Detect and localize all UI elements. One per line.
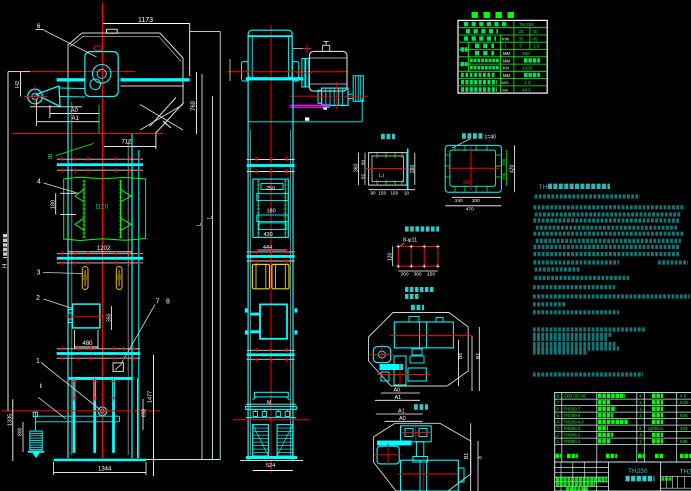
svg-text:712: 712 — [122, 140, 133, 146]
svg-text:7: 7 — [156, 299, 160, 306]
svg-text:B6: B6 — [458, 353, 464, 359]
svg-text:TH250.3: TH250.3 — [564, 426, 581, 431]
svg-text:45: 45 — [533, 36, 539, 41]
svg-text:470: 470 — [466, 207, 474, 212]
svg-text:1: 1 — [36, 358, 40, 365]
svg-text:TH 250: TH 250 — [519, 22, 535, 27]
svg-text:1: 1 — [639, 400, 642, 405]
svg-text:250: 250 — [266, 186, 275, 192]
svg-text:H2: H2 — [15, 81, 21, 88]
svg-text:TH250.1: TH250.1 — [564, 439, 581, 444]
svg-text:35: 35 — [519, 36, 525, 41]
svg-text:TH250.7: TH250.7 — [564, 407, 581, 412]
svg-text:2: 2 — [557, 433, 560, 438]
svg-text:1202: 1202 — [97, 246, 111, 252]
svg-text:300: 300 — [414, 271, 422, 277]
svg-text:150: 150 — [427, 271, 435, 277]
svg-text:40: 40 — [533, 29, 539, 34]
svg-text:TH250.2: TH250.2 — [564, 433, 581, 438]
svg-text:TH250: TH250 — [628, 468, 648, 475]
svg-text:8: 8 — [557, 394, 560, 399]
svg-text:r/mb: r/mb — [501, 88, 509, 92]
svg-text:650: 650 — [142, 408, 148, 417]
svg-text:688: 688 — [680, 439, 688, 444]
svg-text:4: 4 — [37, 179, 41, 186]
svg-text:5: 5 — [557, 413, 560, 418]
svg-text:M: M — [267, 400, 271, 406]
svg-text:1: 1 — [557, 439, 560, 444]
svg-text:a: a — [478, 456, 484, 459]
svg-text:1120: 1120 — [95, 205, 109, 211]
svg-text:48.5: 48.5 — [522, 87, 531, 92]
svg-text:1: 1 — [639, 413, 642, 418]
svg-text:MM: MM — [503, 58, 510, 63]
svg-text:3: 3 — [37, 270, 41, 277]
svg-text:1=40: 1=40 — [485, 135, 496, 141]
svg-text:M/S: M/S — [502, 80, 509, 85]
svg-text:1: 1 — [639, 439, 642, 444]
svg-text:I-I: I-I — [379, 174, 384, 180]
svg-text:240: 240 — [455, 198, 463, 203]
svg-text:480: 480 — [83, 341, 94, 347]
svg-text:200: 200 — [472, 198, 480, 203]
svg-text:20: 20 — [404, 191, 410, 196]
svg-text:25: 25 — [519, 29, 525, 34]
svg-text:KN: KN — [503, 66, 509, 71]
svg-text:3: 3 — [519, 44, 522, 49]
svg-text:204: 204 — [680, 426, 688, 431]
svg-text:Q235-A: Q235-A — [648, 426, 663, 431]
svg-text:1477: 1477 — [148, 391, 154, 403]
svg-text:3: 3 — [557, 426, 560, 431]
svg-text:200: 200 — [502, 158, 507, 166]
svg-text:6: 6 — [557, 407, 560, 412]
svg-text:4: 4 — [557, 420, 560, 425]
svg-text:200: 200 — [502, 172, 507, 180]
svg-text:7: 7 — [557, 400, 560, 405]
svg-text:ZD: ZD — [620, 394, 626, 399]
svg-text:4: 4 — [639, 394, 642, 399]
svg-text:TH250.6: TH250.6 — [564, 413, 581, 418]
svg-text:B1: B1 — [464, 453, 470, 459]
svg-text:524: 524 — [266, 463, 275, 469]
svg-text:1: 1 — [639, 407, 642, 412]
svg-text:90: 90 — [371, 191, 377, 196]
svg-text:150: 150 — [379, 191, 387, 196]
svg-text:1.2: 1.2 — [524, 80, 531, 85]
svg-text:mm: mm — [502, 36, 510, 41]
svg-text:TH250.4JI: TH250.4JI — [564, 420, 584, 425]
svg-text:9.06: 9.06 — [680, 400, 689, 405]
svg-text:2: 2 — [639, 426, 642, 431]
svg-text:1.8: 1.8 — [533, 44, 540, 49]
svg-text:TH: TH — [539, 184, 548, 191]
svg-text:TH2: TH2 — [680, 469, 691, 476]
svg-text:B: B — [48, 154, 53, 161]
svg-text:200: 200 — [401, 271, 409, 277]
svg-text:GB5782-86: GB5782-86 — [564, 394, 587, 399]
svg-text:2: 2 — [36, 295, 40, 302]
svg-text:8: 8 — [166, 299, 170, 306]
svg-text:1173: 1173 — [138, 17, 153, 24]
svg-text:4.8: 4.8 — [680, 394, 687, 399]
svg-text:MM: MM — [503, 51, 510, 56]
svg-text:635: 635 — [680, 413, 688, 418]
svg-text:450: 450 — [522, 51, 530, 56]
svg-text:JI: JI — [639, 433, 643, 438]
svg-text:1344: 1344 — [98, 467, 112, 473]
svg-text:8-φ11: 8-φ11 — [403, 238, 417, 244]
svg-text:150: 150 — [391, 191, 399, 196]
svg-text:l: l — [505, 44, 506, 49]
svg-text:430: 430 — [264, 232, 273, 238]
svg-text:MM: MM — [503, 73, 510, 78]
svg-text:H: H — [3, 264, 9, 268]
svg-text:≥320: ≥320 — [522, 66, 533, 71]
svg-text:180: 180 — [267, 209, 276, 215]
svg-text:900: 900 — [463, 180, 472, 186]
